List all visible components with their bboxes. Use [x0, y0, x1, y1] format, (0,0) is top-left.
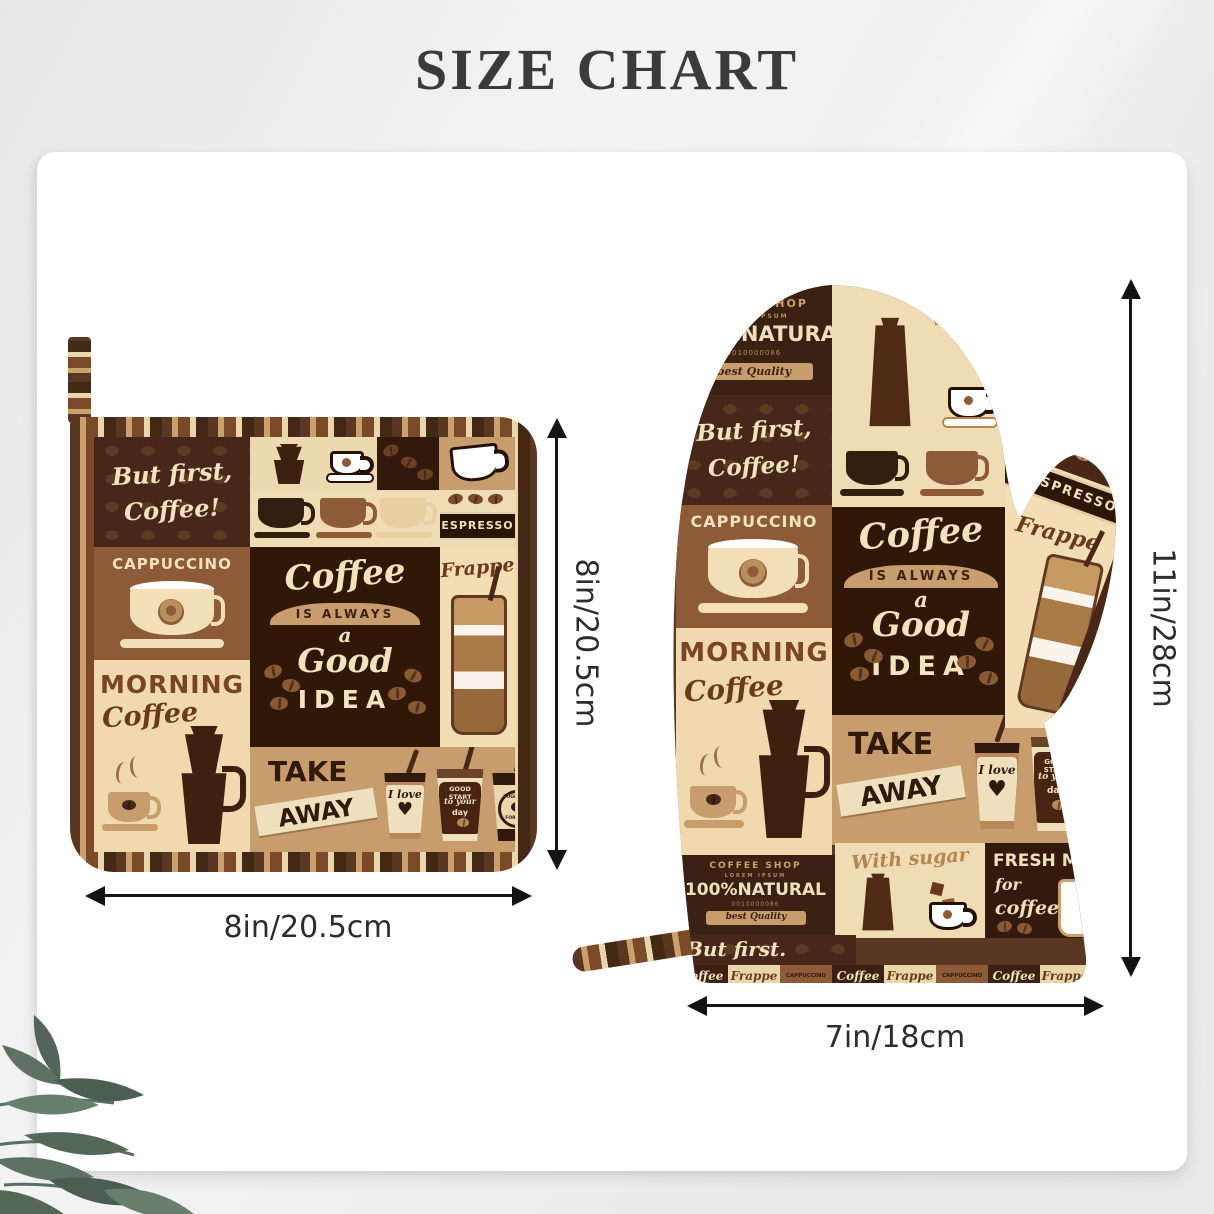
best-quality-text: best Quality [706, 912, 806, 922]
natural-text: 100%NATURAL [676, 880, 835, 900]
saucer [102, 824, 158, 831]
strip-coffee: Coffee [988, 969, 1040, 983]
strip-frappe: Frappe [728, 969, 780, 983]
plant-leaves-decoration [0, 985, 264, 1214]
mitt-width-label: 7in/18cm [825, 1020, 965, 1055]
coffee-excl-text: Coffee! [676, 449, 832, 484]
morning-text: MORNING [94, 670, 250, 699]
coffee-cup-icon [929, 902, 967, 930]
strip-coffee: Coffee [832, 969, 884, 983]
togo-cup-icon: I love ♥ [382, 773, 428, 839]
pot-holder: But first, Coffee! [70, 417, 537, 872]
coffee-pot-icon [266, 444, 312, 484]
coffee-excl-text: Coffee! [94, 491, 250, 528]
togo-cup-icon: I love ♥ [972, 743, 1022, 829]
mitt-bottom-but-first: But first. [676, 935, 856, 967]
coffee-script-text: Coffee [832, 507, 1010, 560]
lorem-text: LOREM IPSUM [676, 873, 835, 879]
mitt-panel-coffee-good-idea: Coffee IS ALWAYS a Good IDEA [832, 507, 1010, 715]
strip-frappe: Frappe [884, 969, 936, 983]
heart-icon: ♥ [977, 777, 1017, 802]
coffee-bean-icon [467, 493, 484, 505]
heart-icon: ♥ [386, 799, 424, 820]
saucer [698, 603, 808, 613]
saucer [254, 532, 310, 538]
coffee-bean-icon [447, 492, 464, 506]
moka-pot-handle [222, 766, 246, 812]
coffee-bean-icon [400, 455, 418, 470]
coffee-cup-icon [948, 387, 990, 419]
mitt-height-arrow [1121, 279, 1141, 977]
away-text: AWAY [837, 767, 966, 816]
with-sugar-text: With sugar [835, 843, 985, 875]
strip-cappuccino: CAPPUCCINO [780, 973, 832, 979]
saucer [316, 532, 372, 538]
strip-cappuccino: CAPPUCCINO [936, 973, 988, 979]
panel-three-cups [250, 490, 440, 547]
morning-text: MORNING [676, 638, 832, 668]
mitt-width-arrow [687, 996, 1104, 1016]
panel-beans [377, 437, 439, 490]
best-quality-ribbon: best Quality [706, 911, 806, 925]
forever-text: FOREVER [501, 816, 515, 821]
espresso-cup-icon [846, 451, 898, 485]
togo-cup-icon: GOOD START to your day [434, 769, 486, 841]
together-text: TOGETHER [501, 795, 515, 800]
coffee-bean-icon [457, 818, 469, 827]
coffee-shop-text: COFFEE SHOP [676, 861, 835, 871]
mitt-panel-cappuccino: CAPPUCCINO [676, 505, 832, 628]
togo-cup-icon: TOGETHER FOREVER [490, 773, 515, 841]
serial-text: 0010000086 [676, 901, 835, 908]
coffee-script-text: Coffee [101, 697, 199, 735]
saucer [326, 473, 374, 483]
saucer [684, 820, 744, 828]
steam-icon [713, 745, 730, 768]
is-always-ribbon: IS ALWAYS [844, 565, 998, 588]
espresso-cup-icon [258, 498, 304, 528]
mitt-panel-morning-coffee: MORNING Coffee [676, 628, 832, 860]
coffee-script-text: Coffee [683, 669, 785, 709]
potholder-width-arrow [85, 886, 532, 906]
pot-holder-hanging-loop [68, 337, 91, 423]
panel-white-cup [439, 437, 515, 490]
cappuccino-cup-icon [130, 589, 214, 635]
saucer [942, 417, 998, 428]
frappe-glass-icon [451, 595, 507, 735]
steam-icon [129, 755, 146, 778]
is-always-text: IS ALWAYS [270, 607, 420, 621]
take-text: TAKE [848, 727, 933, 762]
cappuccino-text: CAPPUCCINO [676, 512, 832, 531]
panel-take-away: TAKE AWAY I love ♥ GOOD START to your da… [250, 747, 515, 852]
panel-pot-and-cup [250, 437, 377, 490]
saucer [920, 489, 984, 496]
saucer [120, 639, 224, 648]
cappuccino-cup-icon [708, 548, 798, 598]
coffee-cup-icon [926, 451, 978, 485]
for-text: for [995, 875, 1021, 894]
potholder-width-label: 8in/20.5cm [223, 910, 392, 945]
white-cup-icon [449, 443, 501, 484]
frappe-text: Frappe [440, 554, 515, 582]
coffee-pot-icon [852, 309, 928, 435]
away-banner: AWAY [836, 765, 965, 816]
mitt-panel-two-cups [832, 443, 1010, 507]
coffee-bean-icon [1016, 922, 1033, 935]
coffee-lower-text: coffee [995, 897, 1059, 919]
saucer [840, 489, 904, 496]
straw-icon [406, 749, 420, 775]
potholder-height-label: 8in/20.5cm [569, 558, 604, 727]
coffee-bean-icon [382, 443, 401, 459]
size-chart-image: SIZE CHART But first, Coffee! [0, 0, 1214, 1214]
coffee-pot-icon [849, 869, 907, 935]
day-text: day [439, 808, 481, 817]
coffee-cup-icon [320, 498, 366, 528]
potholder-height-arrow [547, 418, 567, 870]
panel-morning-coffee: MORNING Coffee [94, 660, 250, 852]
cappuccino-text: CAPPUCCINO [94, 555, 250, 573]
mitt-panel-with-sugar: With sugar [835, 843, 985, 938]
coffee-bean-icon [706, 794, 721, 805]
is-always-text: IS ALWAYS [844, 569, 998, 584]
panel-frappe: Frappe [440, 547, 515, 747]
panel-cappuccino: CAPPUCCINO [94, 547, 250, 660]
page-title: SIZE CHART [0, 36, 1214, 103]
coffee-bean-icon [122, 800, 136, 810]
espresso-text: ESPRESSO [440, 519, 515, 532]
coffee-bean-icon [487, 493, 503, 505]
but-first-text: But first, [94, 455, 250, 492]
mitt-panel-badge-bottom: COFFEE SHOP LOREM IPSUM 100%NATURAL 0010… [676, 855, 835, 935]
away-text: AWAY [255, 790, 378, 836]
to-your-text: to your [439, 796, 481, 806]
mitt-height-label: 11in/28cm [1146, 548, 1181, 708]
is-always-ribbon: IS ALWAYS [270, 603, 420, 625]
but-first-dot-text: But first. [686, 937, 786, 961]
coffee-bean-icon [416, 468, 434, 482]
take-text: TAKE [268, 755, 347, 788]
sugar-cube-icon [930, 882, 945, 897]
panel-espresso: ESPRESSO [440, 490, 515, 547]
straw-icon [513, 747, 515, 773]
coffee-script-text: Coffee [250, 548, 440, 601]
latte-cup-icon [380, 498, 426, 528]
coffee-bean-icon [996, 919, 1013, 933]
coffee-bean-icon [511, 802, 515, 812]
panel-but-first-coffee: But first, Coffee! [94, 437, 250, 547]
fresh-text: FRESH M [993, 851, 1079, 871]
i-love-text: I love [977, 763, 1017, 777]
espresso-band: ESPRESSO [440, 512, 515, 540]
saucer [376, 532, 432, 538]
moka-pot-handle [804, 746, 830, 798]
away-banner: AWAY [254, 788, 377, 836]
panel-coffee-good-idea: Coffee IS ALWAYS a Good IDEA [250, 547, 440, 747]
